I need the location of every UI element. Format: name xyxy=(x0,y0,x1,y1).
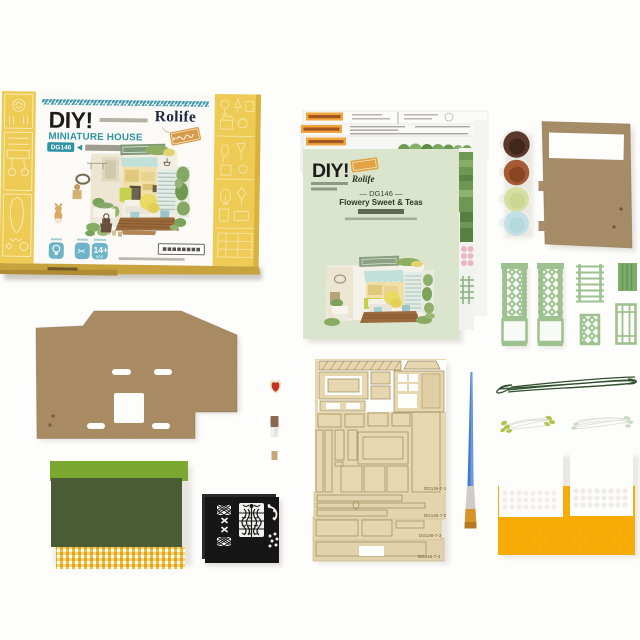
svg-text:Rolife: Rolife xyxy=(155,108,197,126)
svg-text:— DG146 —: — DG146 — xyxy=(360,189,403,198)
svg-text:DG146: DG146 xyxy=(51,144,72,151)
svg-text:14+: 14+ xyxy=(94,245,109,255)
svg-text:DG146-7-1: DG146-7-1 xyxy=(424,486,447,491)
svg-text:AGE: AGE xyxy=(96,255,104,259)
svg-text:DG146-7-3: DG146-7-3 xyxy=(419,533,442,538)
svg-text:DG146-7-2: DG146-7-2 xyxy=(424,513,447,518)
svg-text:DG146-7-4: DG146-7-4 xyxy=(418,554,441,559)
svg-text:Rolife: Rolife xyxy=(351,174,375,184)
svg-text:Flowery Sweet & Teas: Flowery Sweet & Teas xyxy=(339,198,423,207)
svg-text:DIY!: DIY! xyxy=(312,160,349,182)
svg-text:✂: ✂ xyxy=(77,247,86,258)
svg-text:MINIATURE HOUSE: MINIATURE HOUSE xyxy=(48,131,143,143)
svg-text:DIY!: DIY! xyxy=(48,107,92,134)
